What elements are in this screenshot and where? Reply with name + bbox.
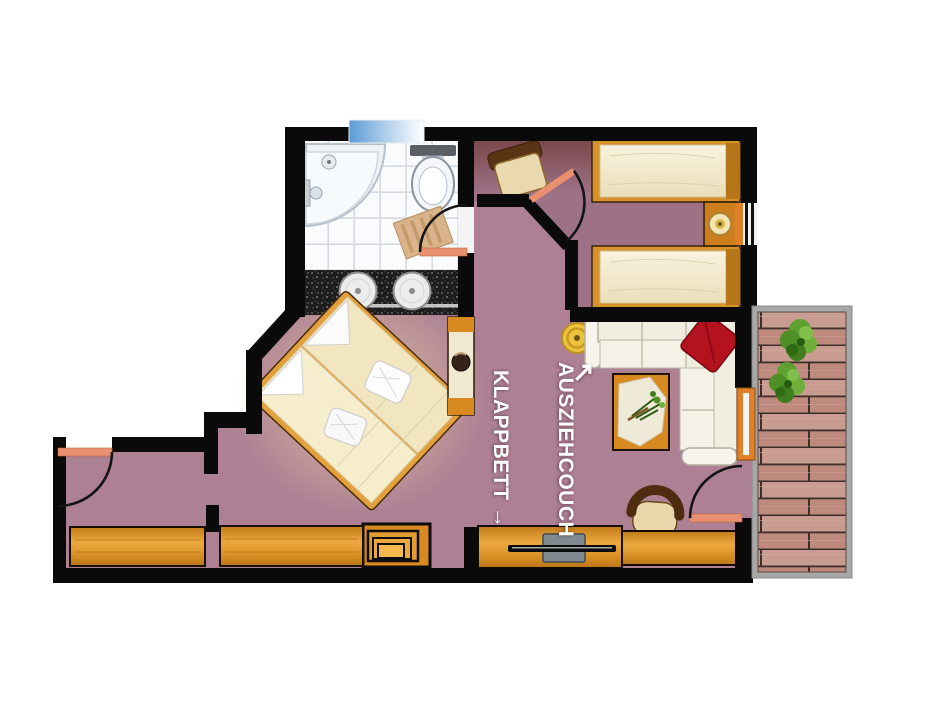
single-bed-top bbox=[592, 140, 740, 202]
couch-arrow-icon: ↗ bbox=[572, 362, 595, 382]
vanity-counter bbox=[303, 270, 462, 315]
toilet bbox=[410, 145, 456, 211]
coffee-table bbox=[613, 374, 669, 450]
floorplan-svg bbox=[0, 0, 940, 705]
nesting-tables bbox=[363, 524, 430, 567]
deck-window bbox=[737, 388, 755, 460]
label-klappbett: KLAPPBETT → bbox=[488, 370, 512, 528]
label-ausziehcouch: AUSZIEHCOUCH bbox=[553, 362, 577, 537]
folding-bed-cabinet bbox=[448, 317, 474, 415]
wardrobe-left bbox=[70, 527, 205, 566]
floor-plan-canvas: KLAPPBETT → AUSZIEHCOUCH ↗ bbox=[0, 0, 940, 705]
nightstand bbox=[704, 202, 736, 246]
wardrobe-right bbox=[220, 526, 363, 566]
sideboard-tv bbox=[478, 526, 622, 568]
bedroom-window bbox=[735, 203, 757, 245]
wood-deck bbox=[752, 306, 852, 578]
bathroom-window bbox=[349, 120, 424, 143]
bathroom bbox=[300, 141, 462, 315]
desk bbox=[622, 531, 737, 565]
single-bed-bottom bbox=[592, 246, 740, 308]
